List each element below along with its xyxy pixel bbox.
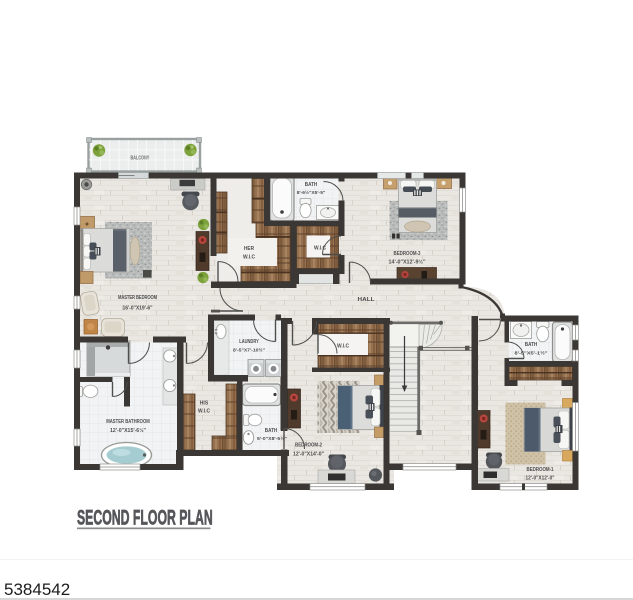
svg-text:12'-0"X15'-6½": 12'-0"X15'-6½"	[110, 427, 146, 434]
svg-text:HALL: HALL	[358, 297, 376, 303]
svg-text:BEDROOM-3: BEDROOM-3	[394, 251, 421, 257]
svg-text:5'-0"X8'-5½": 5'-0"X8'-5½"	[257, 435, 287, 441]
svg-text:12'-0"X14'-0": 12'-0"X14'-0"	[293, 452, 324, 458]
svg-text:12'-0"X12'-0": 12'-0"X12'-0"	[526, 476, 555, 482]
svg-text:16'-0"X19'-6": 16'-0"X19'-6"	[123, 306, 154, 312]
svg-text:8'-5"X5'-1½": 8'-5"X5'-1½"	[515, 350, 548, 356]
svg-text:MASTER BEDROOM: MASTER BEDROOM	[118, 295, 157, 301]
svg-text:HER: HER	[244, 246, 254, 252]
svg-text:BEDROOM-1: BEDROOM-1	[527, 467, 554, 473]
svg-text:BATH: BATH	[525, 342, 538, 348]
svg-text:14'-0"X12'-9½": 14'-0"X12'-9½"	[389, 259, 426, 266]
svg-text:BATH: BATH	[305, 182, 318, 188]
svg-text:W.I.C: W.I.C	[198, 409, 210, 415]
svg-text:SECOND FLOOR PLAN: SECOND FLOOR PLAN	[77, 505, 213, 529]
svg-text:W.I.C: W.I.C	[337, 344, 349, 350]
svg-text:MASTER BATHROOM: MASTER BATHROOM	[106, 419, 150, 425]
svg-text:BATH: BATH	[265, 428, 278, 434]
svg-text:8'-5"X7'-10½": 8'-5"X7'-10½"	[233, 347, 265, 354]
svg-text:LAUNDRY: LAUNDRY	[239, 339, 259, 345]
svg-text:HIS: HIS	[200, 401, 209, 407]
svg-text:BALCONY: BALCONY	[131, 156, 150, 162]
svg-text:5384542: 5384542	[4, 580, 70, 599]
svg-text:8'-6½"X5'-5": 8'-6½"X5'-5"	[297, 189, 326, 196]
svg-text:W.I.C: W.I.C	[243, 255, 255, 261]
svg-text:BEDROOM-2: BEDROOM-2	[295, 443, 322, 449]
